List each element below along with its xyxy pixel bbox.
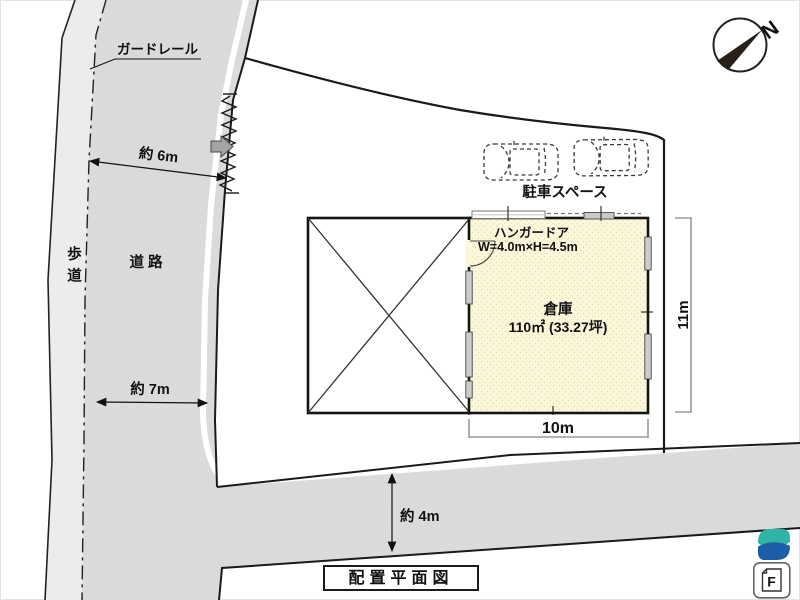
warehouse-area-label: 110㎡ (33.27坪) (509, 319, 608, 335)
parked-car-1 (484, 141, 558, 180)
warehouse-name-label: 倉庫 (543, 300, 573, 318)
brand-logo-icon (758, 529, 790, 560)
existing-building (308, 218, 470, 413)
hangar-door-size-label: W=4.0m×H=4.5m (478, 240, 578, 254)
site-plan-drawing: ガードレール 約 6m 歩道 道 路 約 7m 約 4m 駐車スペース ハンガー… (0, 0, 800, 600)
road-width-lower-label: 約 7m (130, 380, 170, 398)
width-10m-label: 10m (542, 420, 574, 437)
parking-label: 駐車スペース (522, 183, 607, 201)
document-f-icon: F (754, 563, 790, 598)
title-box: 配置平面図 (324, 566, 478, 590)
site-plan-page: ガードレール 約 6m 歩道 道 路 約 7m 約 4m 駐車スペース ハンガー… (0, 0, 800, 600)
road-label: 道 路 (129, 253, 163, 271)
sidewalk-label: 歩道 (65, 245, 81, 289)
page-title: 配置平面図 (348, 569, 453, 587)
door-opening (466, 240, 473, 267)
hangar-door-panel (584, 213, 614, 220)
document-f-letter: F (767, 574, 776, 590)
compass-icon: N (714, 17, 784, 72)
depth-11m-label: 11m (675, 300, 692, 329)
guardrail-label: ガードレール (117, 42, 198, 57)
parked-car-2 (574, 136, 648, 176)
south-road-width-label: 約 4m (400, 507, 440, 525)
hangar-door-label: ハンガードア (494, 225, 569, 240)
